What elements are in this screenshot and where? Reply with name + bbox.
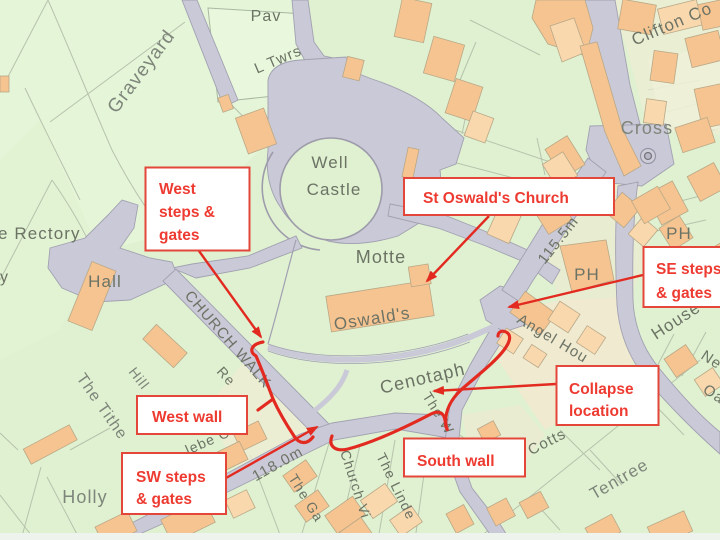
svg-text:y: y xyxy=(0,269,9,286)
svg-text:West: West xyxy=(159,181,196,198)
svg-text:& gates: & gates xyxy=(656,285,712,302)
svg-text:Pav: Pav xyxy=(251,8,282,25)
svg-text:gates: gates xyxy=(159,227,200,244)
svg-text:Holly: Holly xyxy=(62,487,108,507)
svg-text:Collapse: Collapse xyxy=(569,381,634,398)
svg-text:St Oswald's Church: St Oswald's Church xyxy=(423,190,569,207)
svg-text:West wall: West wall xyxy=(152,409,222,426)
svg-text:steps &: steps & xyxy=(159,204,215,221)
svg-text:Cross: Cross xyxy=(621,118,674,138)
svg-text:e Rectory: e Rectory xyxy=(0,224,81,243)
svg-text:Hall: Hall xyxy=(88,272,122,291)
svg-text:PH: PH xyxy=(666,224,692,243)
svg-text:South wall: South wall xyxy=(417,453,495,470)
svg-text:location: location xyxy=(569,403,628,420)
svg-text:PH: PH xyxy=(574,265,600,284)
svg-text:Motte: Motte xyxy=(356,247,407,267)
svg-text:Well: Well xyxy=(311,153,348,172)
svg-text:SW steps: SW steps xyxy=(136,469,206,486)
svg-text:& gates: & gates xyxy=(136,491,192,508)
svg-text:SE steps: SE steps xyxy=(656,261,720,278)
svg-text:Castle: Castle xyxy=(307,180,362,199)
